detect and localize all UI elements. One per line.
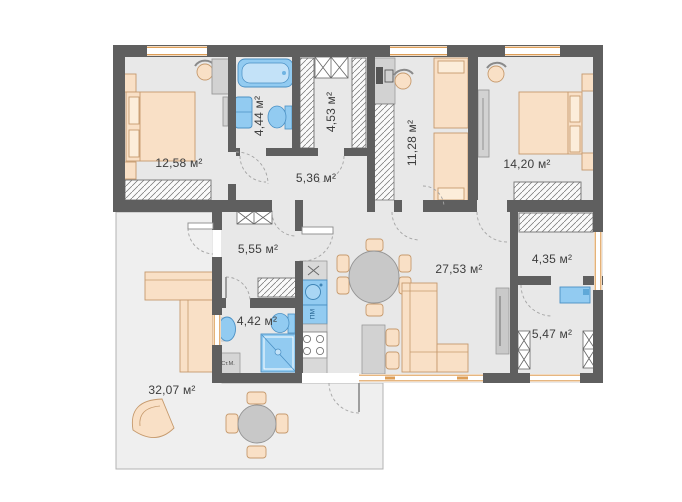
dining-chair	[366, 239, 383, 251]
desk	[362, 325, 385, 374]
sofa	[437, 344, 468, 372]
room-label-hallway: 5,36 м²	[296, 171, 336, 185]
sink	[235, 97, 252, 128]
dishwasher-label: ПМ	[310, 309, 317, 320]
room-label-living-kitchen: 27,53 м²	[435, 262, 482, 276]
pillow	[570, 96, 580, 122]
dining-table	[349, 251, 399, 303]
desk-chair	[386, 329, 399, 346]
sofa	[402, 283, 437, 372]
room-label-terrace: 32,07 м²	[148, 383, 195, 397]
washing-machine-label: Ст.М.	[221, 361, 235, 367]
window	[390, 46, 447, 56]
terrace-table	[238, 405, 276, 443]
room-label-kids-room: 11,28 м²	[405, 120, 419, 166]
shoe-cabinet	[237, 211, 272, 224]
desk-chair	[395, 73, 411, 89]
window	[505, 46, 560, 56]
terrace-chair	[226, 414, 238, 433]
room-label-bedroom-1: 12,58 м²	[155, 156, 202, 170]
room-label-entry-hall: 5,55 м²	[238, 242, 278, 256]
tv-console	[478, 90, 489, 157]
terrace-chair	[276, 414, 288, 433]
kitchen-sink	[306, 285, 321, 300]
door-opening	[213, 230, 221, 257]
stool	[488, 66, 504, 82]
nightstand	[582, 74, 594, 91]
sink	[219, 317, 236, 341]
kitchen-counter	[300, 324, 327, 332]
toilet-bowl	[268, 106, 286, 128]
room-label-dressing-room: 4,35 м²	[532, 252, 572, 266]
stool	[197, 64, 213, 80]
room-label-bathroom-2: 4,42 м²	[237, 314, 277, 328]
crossed-cabinet	[315, 57, 348, 78]
pillow	[438, 61, 464, 73]
room-label-bathroom-1: 4,44 м²	[252, 96, 266, 136]
terrace-chair	[247, 392, 266, 404]
window	[594, 232, 602, 290]
window	[147, 46, 207, 56]
terrace-chair	[247, 446, 266, 458]
window	[213, 315, 221, 345]
floor-plan: 12,58 м² 4,44 м² 4,53 м² 5,36 м² 11,28 м…	[0, 0, 682, 502]
room-label-wardrobe-room: 4,53 м²	[324, 92, 338, 132]
tv-panel	[496, 288, 509, 354]
dining-chair	[399, 255, 411, 272]
pillow	[129, 130, 139, 157]
pillow	[570, 126, 580, 152]
pillow	[129, 97, 139, 124]
outdoor-sofa	[180, 300, 213, 372]
dining-chair	[337, 277, 349, 294]
mirror	[223, 97, 228, 126]
computer-icon	[376, 67, 383, 84]
window	[530, 374, 580, 382]
dresser	[212, 59, 229, 94]
glass-wall	[359, 374, 483, 382]
room-label-utility-room: 5,47 м²	[532, 327, 572, 341]
stove	[300, 332, 327, 358]
dining-chair	[337, 255, 349, 272]
floor-plan-drawing	[0, 0, 682, 502]
desk-chair	[386, 352, 399, 369]
door-leaf	[188, 223, 213, 229]
outdoor-sofa	[145, 272, 213, 300]
bathtub-inner	[242, 63, 289, 83]
door-leaf	[302, 227, 333, 234]
dining-chair	[366, 304, 383, 316]
nightstand	[582, 153, 594, 170]
room-label-bedroom-2: 14,20 м²	[503, 157, 550, 171]
door-opening	[302, 373, 359, 383]
